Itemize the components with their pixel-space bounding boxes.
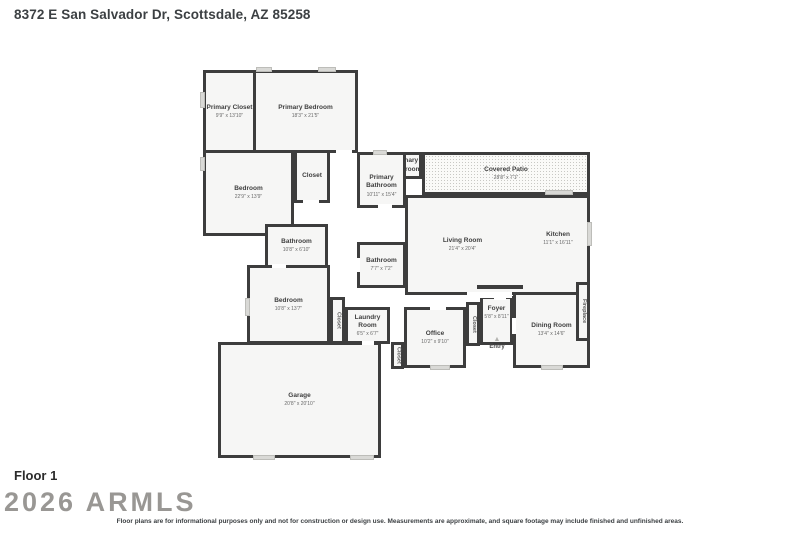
floorplan: Primary Closet9'9" x 13'10"Primary Bedro… — [0, 0, 800, 533]
window-marker — [200, 92, 205, 108]
room-name-covered-patio: Covered Patio — [484, 166, 528, 174]
room-garage: Garage20'8" x 20'10" — [218, 342, 381, 458]
floorplan-page: 8372 E San Salvador Dr, Scottsdale, AZ 8… — [0, 0, 800, 533]
floor-label: Floor 1 — [14, 468, 57, 483]
room-name-bathroom-1: Bathroom — [281, 238, 312, 246]
room-closet-4: Closet — [466, 302, 480, 346]
room-dims-bedroom-1: 22'9" x 13'9" — [234, 194, 263, 200]
room-dims-primary-closet: 9'9" x 13'10" — [207, 113, 253, 119]
room-primary-bathroom: Primary Bathroom10'11" x 15'4" — [357, 152, 406, 208]
room-name-primary-bedroom: Primary Bedroom — [278, 104, 333, 112]
window-marker — [245, 298, 250, 316]
window-marker — [545, 190, 573, 195]
door-opening — [362, 341, 374, 345]
room-office: Office10'2" x 9'10" — [404, 307, 466, 368]
room-name-garage: Garage — [284, 392, 314, 400]
room-name-fireplace: Fireplace — [580, 299, 586, 323]
room-name-laundry-room: Laundry Room — [348, 314, 387, 330]
window-marker — [373, 150, 387, 155]
room-dims-bathroom-1: 10'8" x 6'10" — [281, 247, 312, 253]
room-name-dining-room: Dining Room — [531, 322, 571, 330]
door-opening — [272, 264, 286, 268]
room-name-closet-4: Closet — [470, 316, 476, 333]
room-covered-patio: Covered Patio28'8" x 7'1" — [422, 152, 590, 195]
window-marker — [253, 455, 275, 460]
watermark: 2026 ARMLS — [4, 487, 197, 518]
room-name-bedroom-2: Bedroom — [274, 297, 303, 305]
room-name-closet-2: Closet — [335, 312, 341, 329]
room-name-bathroom-2: Bathroom — [366, 257, 397, 265]
entry-label: Entry — [486, 344, 508, 350]
window-marker — [430, 365, 450, 370]
room-dims-garage: 20'8" x 20'10" — [284, 401, 314, 407]
room-primary-bedroom: Primary Bedroom18'3" x 21'5" — [253, 70, 358, 153]
entry-triangle-icon: ▲ — [486, 336, 508, 343]
door-opening — [356, 258, 360, 272]
door-opening — [303, 200, 319, 204]
door-opening — [378, 204, 392, 208]
room-dims-primary-bathroom: 10'11" x 15'4" — [360, 192, 403, 198]
room-name-living-room: Living Room — [443, 237, 482, 245]
room-closet-3: Closet — [391, 342, 404, 369]
room-bathroom-1: Bathroom10'8" x 6'10" — [265, 224, 328, 268]
room-kitchen: Kitchen11'1" x 16'11" — [527, 228, 589, 250]
room-laundry-room: Laundry Room6'5" x 6'7" — [345, 307, 390, 344]
room-dims-dining-room: 13'4" x 14'6" — [531, 331, 571, 337]
room-bathroom-2: Bathroom7'7" x 7'2" — [357, 242, 406, 288]
room-dims-foyer: 5'8" x 8'11" — [484, 314, 508, 320]
disclaimer-text: Floor plans are for informational purpos… — [0, 518, 800, 525]
door-opening — [430, 306, 446, 310]
room-dims-covered-patio: 28'8" x 7'1" — [484, 175, 528, 181]
room-fireplace: Fireplace — [576, 282, 590, 341]
room-primary-closet: Primary Closet9'9" x 13'10" — [203, 70, 256, 153]
room-dims-laundry-room: 6'5" x 6'7" — [348, 331, 387, 337]
room-name-foyer: Foyer — [484, 305, 508, 313]
room-closet-2: Closet — [330, 297, 345, 344]
window-marker — [200, 157, 205, 171]
window-marker — [318, 67, 336, 72]
room-name-office: Office — [421, 330, 448, 338]
room-dims-living-room: 21'4" x 20'4" — [443, 246, 482, 252]
door-opening — [336, 150, 352, 154]
room-dims-office: 10'2" x 9'10" — [421, 339, 448, 345]
room-name-closet-1: Closet — [302, 172, 322, 180]
window-marker — [256, 67, 272, 72]
door-opening — [512, 318, 516, 334]
window-marker — [587, 222, 592, 246]
room-dims-bedroom-2: 10'8" x 13'7" — [274, 306, 303, 312]
room-name-bedroom-1: Bedroom — [234, 185, 263, 193]
room-dims-primary-bedroom: 18'3" x 21'5" — [278, 113, 333, 119]
room-name-primary-closet: Primary Closet — [207, 104, 253, 112]
door-opening — [467, 292, 512, 298]
room-name-primary-bathroom: Primary Bathroom — [360, 174, 403, 190]
wall-segment — [477, 285, 523, 289]
room-dims-kitchen: 11'1" x 16'11" — [543, 240, 572, 246]
room-name-kitchen: Kitchen — [543, 231, 572, 239]
window-marker — [350, 455, 374, 460]
room-closet-1: Closet — [294, 150, 330, 203]
window-marker — [541, 365, 563, 370]
room-bedroom-2: Bedroom10'8" x 13'7" — [247, 265, 330, 344]
entry-marker: ▲Entry — [486, 336, 508, 350]
room-name-closet-3: Closet — [395, 347, 401, 364]
room-dims-bathroom-2: 7'7" x 7'2" — [366, 266, 397, 272]
